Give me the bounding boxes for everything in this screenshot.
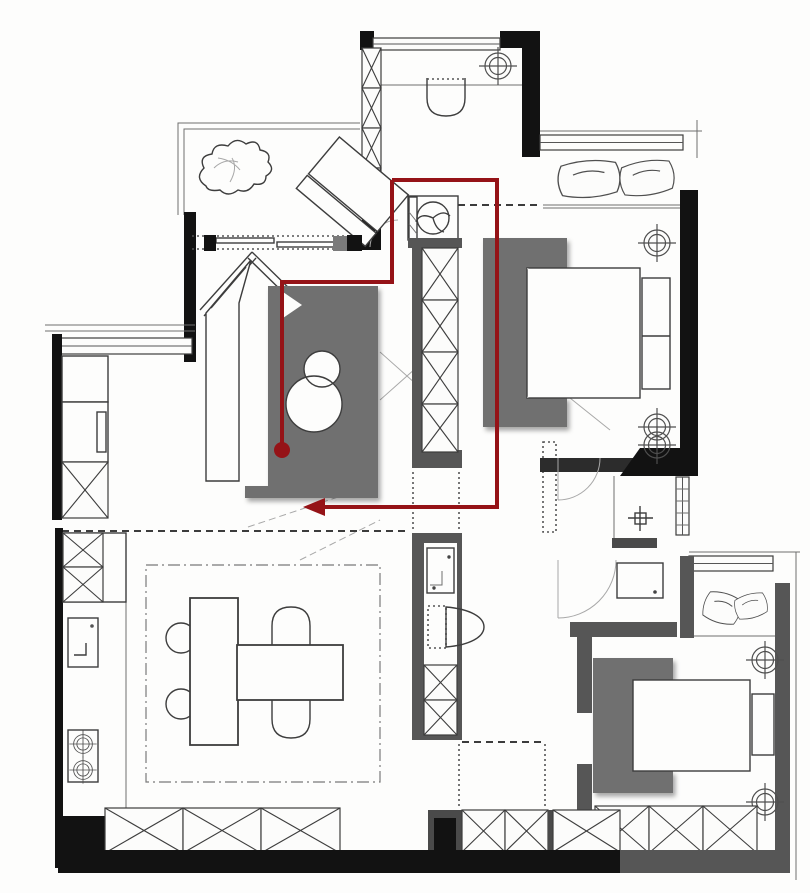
sliding-window [192, 235, 362, 251]
floor-drain-cross [628, 506, 653, 531]
pillow [618, 158, 676, 198]
floor-plan [0, 0, 810, 893]
bath-vanity [617, 563, 663, 598]
pillow [557, 159, 621, 199]
floor-plan-drawing [0, 0, 810, 893]
nightstand [752, 694, 774, 755]
left-closet-wing [45, 325, 195, 520]
pillow [732, 590, 769, 621]
route-arrow [303, 498, 325, 516]
living-dining-room [105, 565, 380, 853]
ceiling-light [638, 224, 676, 262]
cooktop-burners [68, 730, 98, 784]
kitchen-sink [68, 618, 98, 667]
dining-table-extension [237, 645, 343, 700]
sideboard-left [105, 808, 340, 853]
washing-machine [408, 196, 458, 240]
nightstand [642, 278, 670, 389]
mattress [633, 680, 750, 771]
door-swing-arc [558, 560, 616, 618]
dining-chair [272, 607, 310, 650]
dining-chair [272, 695, 310, 738]
dining-table [190, 598, 238, 745]
mattress [527, 268, 640, 398]
bath-shelf [612, 538, 657, 548]
study-room [200, 252, 378, 498]
tatami-desk [245, 286, 378, 498]
closet-cabinet [62, 356, 108, 518]
angled-desk [206, 260, 251, 481]
balcony-plant [199, 140, 271, 194]
double-bed [483, 238, 640, 427]
sideboard-middle [428, 810, 620, 852]
bedroom-top-right [483, 120, 702, 476]
bathroom-column [412, 533, 484, 740]
ceiling-light [479, 47, 517, 85]
double-bed [593, 658, 750, 793]
route-start-dot [274, 442, 290, 458]
corridor-wardrobe [408, 196, 462, 468]
louver-window [676, 477, 689, 535]
entry-door-swing [427, 78, 465, 116]
